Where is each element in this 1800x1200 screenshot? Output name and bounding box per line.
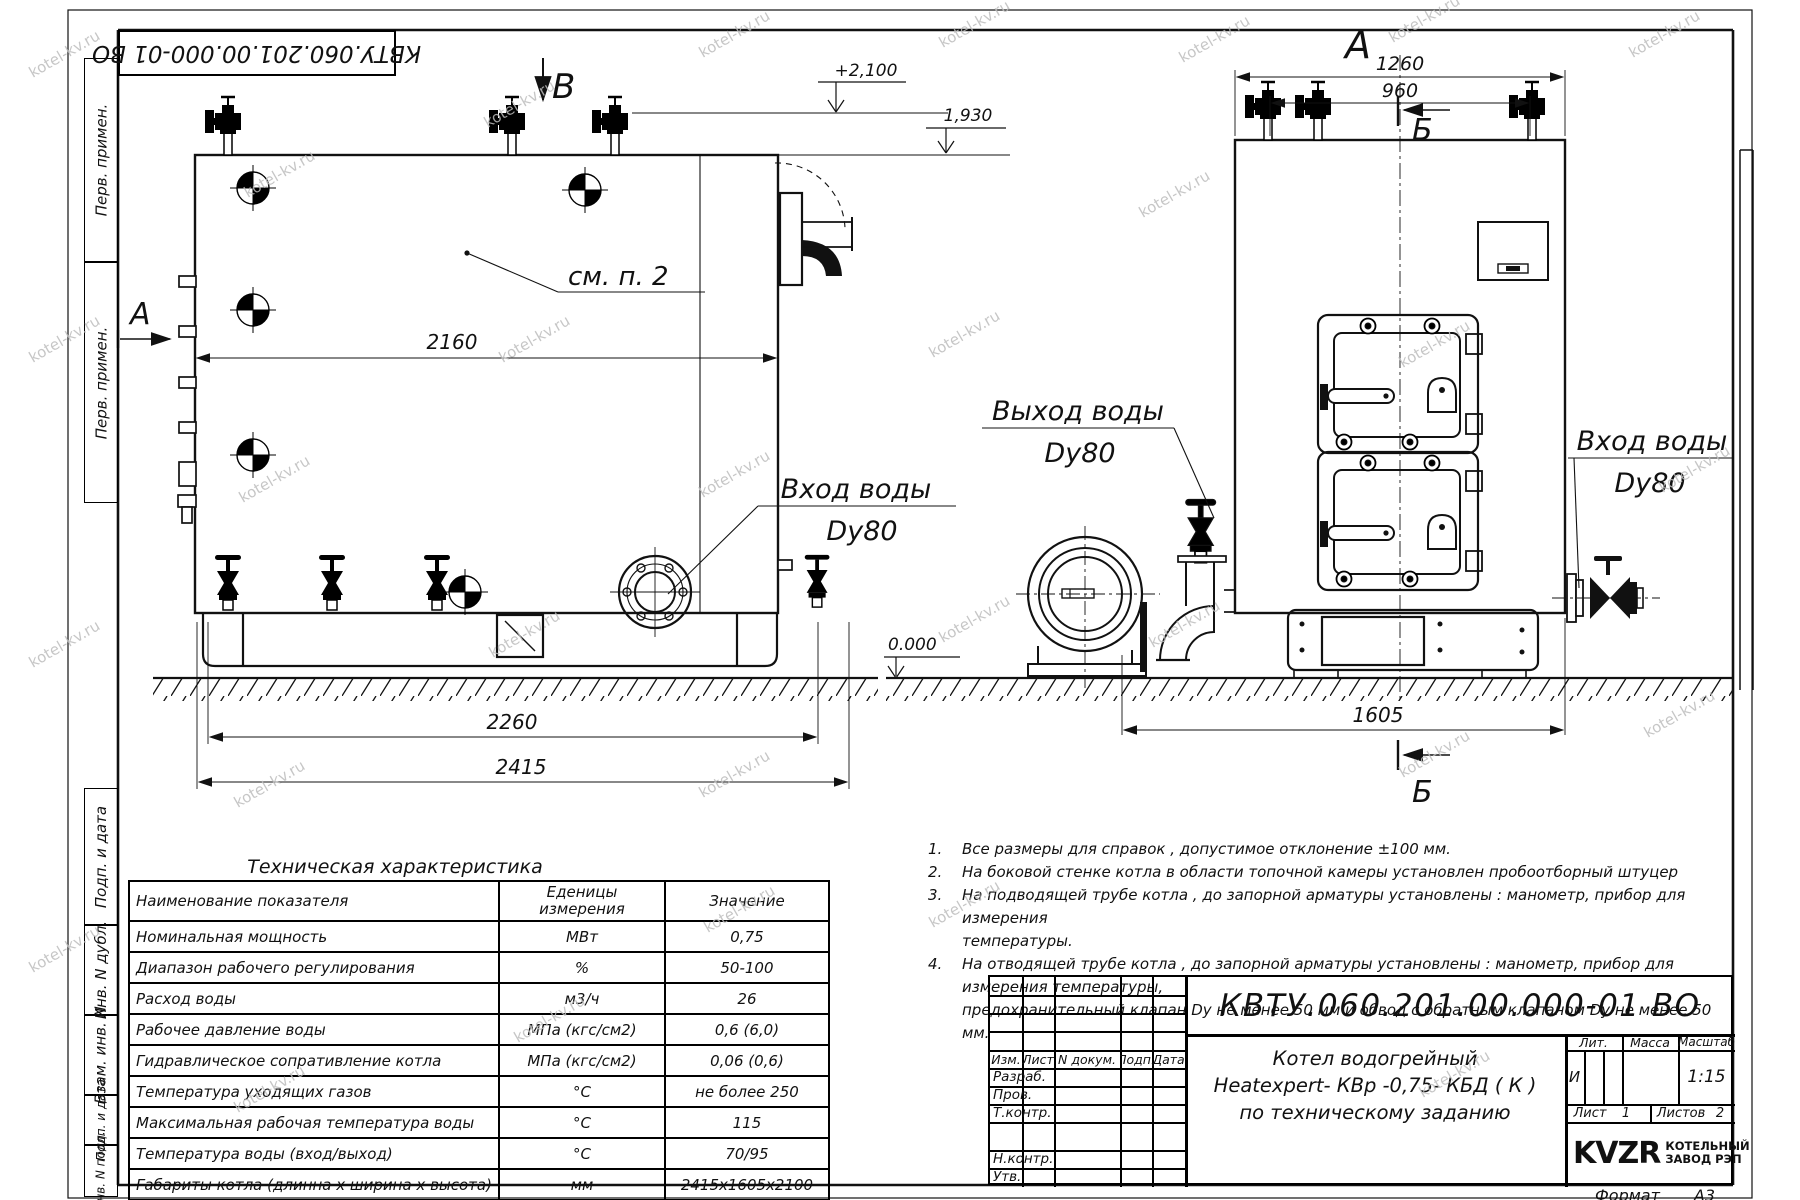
sheets-value: 2 <box>1712 1104 1728 1122</box>
tech-value: 115 <box>665 1107 829 1138</box>
gate-valve-icon <box>319 555 345 610</box>
inlet-valve-front <box>1552 556 1660 622</box>
side-base-frame <box>203 613 777 666</box>
tech-unit: °С <box>499 1138 665 1169</box>
table-row: Габариты котла (длинна х ширина х высота… <box>129 1169 829 1200</box>
dim-2260: 2260 <box>487 710 538 734</box>
table-row: Температура воды (вход/выход) °С 70/95 <box>129 1138 829 1169</box>
ground-left <box>153 678 878 701</box>
table-row: Максимальная рабочая температура воды °С… <box>129 1107 829 1138</box>
sign-prov: Пров. <box>990 1086 1054 1104</box>
format-value: А3 <box>1694 1186 1715 1200</box>
tech-table-title: Техническая характеристика <box>180 856 610 878</box>
top-stamp-number: КВТУ.060.201.00.000-01 ВО <box>92 40 421 66</box>
sheets-label: Листов <box>1655 1104 1707 1122</box>
margin-label: Подп. и дата <box>92 805 110 907</box>
product-name-line: Котел водогрейный <box>1187 1045 1563 1072</box>
note-text: На подводящей трубе котла , до запорной … <box>962 884 1733 930</box>
center-mark-icon <box>230 432 276 478</box>
tech-value: 0,06 (0,6) <box>665 1045 829 1076</box>
note-number: 3. <box>928 884 962 953</box>
tech-unit: % <box>499 952 665 983</box>
section-b-top: Б <box>1412 113 1433 148</box>
tech-header-value: Значение <box>665 881 829 921</box>
tech-value: 50-100 <box>665 952 829 983</box>
view-a-letter: А <box>128 297 151 332</box>
dim-960: 960 <box>1382 80 1418 102</box>
center-mark-icon <box>230 165 276 211</box>
right-pipe-lines <box>1740 150 1753 690</box>
tech-value: 70/95 <box>665 1138 829 1169</box>
tech-value: 26 <box>665 983 829 1014</box>
sign-utv: Утв. <box>990 1168 1054 1185</box>
tech-unit: МВт <box>499 921 665 952</box>
note-item: 2. На боковой стенке котла в области топ… <box>928 861 1733 884</box>
dim-2160: 2160 <box>427 330 478 354</box>
inlet-size-front: Dy80 <box>1614 468 1685 499</box>
note-number: 2. <box>928 861 962 884</box>
note-number: 4. <box>928 953 962 1045</box>
note-item: 3. На подводящей трубе котла , до запорн… <box>928 884 1733 953</box>
outlet-size: Dy80 <box>1044 438 1115 469</box>
outlet-pipe <box>1156 499 1235 660</box>
tech-name: Температура воды (вход/выход) <box>129 1138 499 1169</box>
doc-number: КВТУ.060.201.00.000-01 ВО <box>1190 981 1730 1031</box>
tech-unit: °С <box>499 1076 665 1107</box>
margin-cell: Перв. примен. <box>84 58 118 262</box>
kvzr-logo: KVZR КОТЕЛЬНЫЙ ЗАВОД РЭП <box>1568 1124 1730 1182</box>
sign-tkontr: Т.контр. <box>990 1104 1054 1122</box>
outlet-label: Выход воды <box>992 396 1164 427</box>
margin-label: Перв. примен. <box>92 326 110 439</box>
inlet-flange <box>610 547 700 637</box>
see-note-label: см. п. 2 <box>568 262 669 292</box>
inlet-size-side: Dy80 <box>826 516 897 547</box>
ground-right <box>886 678 1733 701</box>
tech-name: Максимальная рабочая температура воды <box>129 1107 499 1138</box>
tech-name: Диапазон рабочего регулирования <box>129 952 499 983</box>
table-row: Расход воды м3/ч 26 <box>129 983 829 1014</box>
col-podp: Подп. <box>1120 1050 1152 1068</box>
col-ndoc: N докум. <box>1054 1050 1120 1068</box>
company-line: ЗАВОД РЭП <box>1665 1153 1749 1166</box>
tech-name: Габариты котла (длинна х ширина х высота… <box>129 1169 499 1200</box>
drain-valve <box>778 555 829 607</box>
level-zero: 0.000 <box>888 635 937 655</box>
inlet-label-front: Вход воды <box>1577 426 1728 457</box>
side-view-texts: В А см. п. 2 2160 2260 2415 +2,100 1,930… <box>128 61 992 779</box>
dim-2415: 2415 <box>496 755 547 779</box>
table-row: Номинальная мощность МВт 0,75 <box>129 921 829 952</box>
company-name: КОТЕЛЬНЫЙ ЗАВОД РЭП <box>1665 1140 1749 1166</box>
tech-value: 0,6 (6,0) <box>665 1014 829 1045</box>
scale-header: Масштаб <box>1678 1034 1735 1050</box>
top-stamp: КВТУ.060.201.00.000-01 ВО <box>118 30 396 76</box>
center-mark-icon <box>442 569 488 615</box>
tech-name: Температура уходящих газов <box>129 1076 499 1107</box>
side-view <box>153 97 878 701</box>
sign-nkontr: Н.контр. <box>990 1150 1054 1168</box>
tech-header-unit-1: Еденицы <box>506 884 658 901</box>
tech-header-unit: Еденицы измерения <box>499 881 665 921</box>
mass-header: Масса <box>1622 1034 1678 1050</box>
tech-header-unit-2: измерения <box>506 901 658 918</box>
tech-unit: МПа (кгс/см2) <box>499 1014 665 1045</box>
safety-valve-icon <box>205 97 241 155</box>
gate-valve-icon <box>215 555 241 610</box>
table-row: Гидравлическое сопративление котла МПа (… <box>129 1045 829 1076</box>
section-b-letter: В <box>552 67 575 107</box>
view-a-big: А <box>1342 23 1371 67</box>
center-mark-icon <box>562 167 608 213</box>
margin-cell: Инв. N дубл. <box>84 925 118 1015</box>
tech-header-name: Наименование показателя <box>129 881 499 921</box>
tech-unit: м3/ч <box>499 983 665 1014</box>
flue-elbow <box>775 163 852 285</box>
table-row: Рабочее давление воды МПа (кгс/см2) 0,6 … <box>129 1014 829 1045</box>
tech-value: не более 250 <box>665 1076 829 1107</box>
section-b-bottom: Б <box>1412 775 1433 810</box>
tech-table: Наименование показателя Еденицы измерени… <box>128 880 830 1200</box>
safety-valve-icon <box>1245 82 1281 140</box>
note-item: 1. Все размеры для справок , допустимое … <box>928 838 1733 861</box>
margin-label: Перв. примен. <box>92 104 110 217</box>
inlet-label-side: Вход воды <box>781 474 932 505</box>
tech-name: Расход воды <box>129 983 499 1014</box>
note-text: На боковой стенке котла в области топочн… <box>962 861 1678 884</box>
front-view <box>886 55 1753 701</box>
gate-valve-icon <box>424 555 450 610</box>
note-number: 1. <box>928 838 962 861</box>
tech-unit: °С <box>499 1107 665 1138</box>
lit-value: И <box>1565 1050 1584 1104</box>
level-shell: 1,930 <box>944 106 993 126</box>
table-row: Диапазон рабочего регулирования % 50-100 <box>129 952 829 983</box>
note-text: температуры. <box>962 930 1733 953</box>
margin-label: Инв. N дубл. <box>92 921 110 1019</box>
scale-value: 1:15 <box>1678 1050 1735 1104</box>
drawing-sheet: В А см. п. 2 2160 2260 2415 +2,100 1,930… <box>0 0 1800 1200</box>
tech-name: Гидравлическое сопративление котла <box>129 1045 499 1076</box>
table-row: Температура уходящих газов °С не более 2… <box>129 1076 829 1107</box>
col-list: Лист <box>1022 1050 1054 1068</box>
safety-valve-icon <box>1295 82 1331 140</box>
title-block: КВТУ.060.201.00.000-01 ВО Изм. Лист N до… <box>988 975 1733 1185</box>
sheet-label: Лист <box>1570 1104 1610 1122</box>
tech-value: 2415х1605х2100 <box>665 1169 829 1200</box>
safety-valve-icon <box>592 97 628 155</box>
margin-cell: Инв. N подл. <box>84 1145 118 1197</box>
center-mark-icon <box>230 287 276 333</box>
dim-1260: 1260 <box>1376 53 1424 75</box>
format-row: Формат А3 <box>1595 1186 1715 1200</box>
product-name-line: Heatexpert- КВр -0,75- КБД ( К ) <box>1187 1072 1563 1099</box>
fan-blower <box>1016 526 1160 688</box>
col-data: Дата <box>1152 1050 1185 1068</box>
dim-1605: 1605 <box>1353 703 1404 727</box>
kvzr-logo-text: KVZR <box>1573 1136 1660 1171</box>
side-fittings <box>178 276 196 523</box>
product-name: Котел водогрейный Heatexpert- КВр -0,75-… <box>1187 1045 1563 1126</box>
safety-valve-icon <box>489 97 525 155</box>
note-text: Все размеры для справок , допустимое отк… <box>962 838 1451 861</box>
margin-cell: Подп. и дата <box>84 788 118 925</box>
format-label: Формат <box>1595 1186 1660 1200</box>
margin-label: Инв. N подл. <box>94 1131 108 1200</box>
product-name-line: по техническому заданию <box>1187 1099 1563 1126</box>
margin-cell: Перв. примен. <box>84 262 118 503</box>
tech-name: Рабочее давление воды <box>129 1014 499 1045</box>
sign-razrab: Разраб. <box>990 1068 1054 1086</box>
col-izm: Изм. <box>990 1050 1022 1068</box>
front-base-frame <box>1288 610 1538 678</box>
tech-value: 0,75 <box>665 921 829 952</box>
safety-valve-icon <box>1509 82 1545 140</box>
tech-unit: МПа (кгс/см2) <box>499 1045 665 1076</box>
tech-name: Номинальная мощность <box>129 921 499 952</box>
level-top: +2,100 <box>835 61 898 81</box>
tech-unit: мм <box>499 1169 665 1200</box>
top-hatch-panel <box>1478 222 1548 280</box>
sheet-value: 1 <box>1618 1104 1634 1122</box>
lit-header: Лит. <box>1565 1034 1622 1050</box>
